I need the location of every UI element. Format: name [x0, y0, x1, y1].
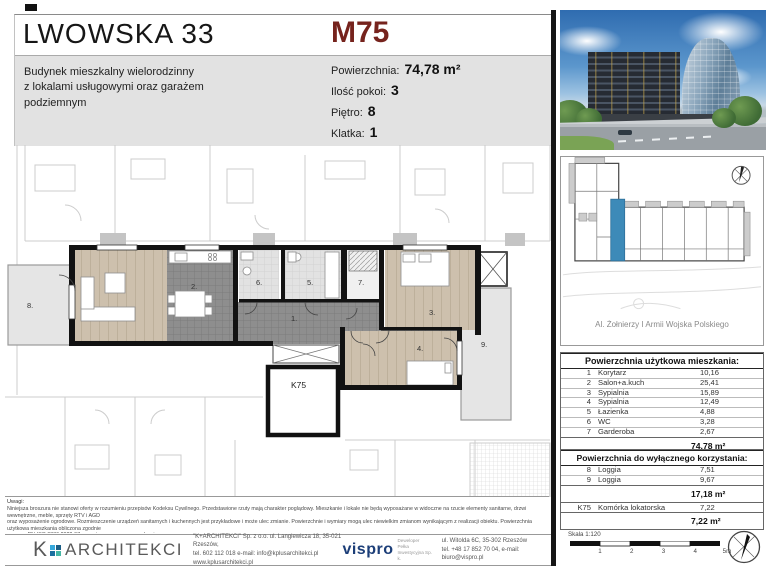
- logo-square: [50, 551, 55, 556]
- scale-tick: 3: [648, 548, 678, 555]
- scale-tick: 2: [617, 548, 647, 555]
- table-row: 2 Salon+a.kuch 25,41: [561, 378, 763, 388]
- room-label-3: 3.: [429, 308, 435, 317]
- vispro-logo: vispro Deweloper Pełka Inwestycyjna Sp. …: [342, 538, 433, 562]
- room-number: 8: [561, 466, 591, 475]
- scale-bar: [570, 541, 722, 548]
- karchitekci-logo-text: ARCHITEKCI: [65, 540, 183, 560]
- developer-contact-line: ul. Witolda 6C, 35-302 Rzeszów: [442, 537, 545, 546]
- scale-footer: Skala 1:120 1 2 3 4 5m: [560, 528, 764, 568]
- notes-body: Niniejsza broszura nie stanowi oferty w …: [7, 506, 547, 533]
- floor-plan-drawing: 8. 2. 6. 5. 7. 3. 1. 4. 9. K75: [5, 145, 552, 497]
- table-row: 4 Sypialnia 12,49: [561, 397, 763, 407]
- architect-contact-line: tel. 602 112 018 e-mail: info@kplusarchi…: [193, 550, 342, 559]
- room-label-8: 8.: [27, 301, 33, 310]
- unit-number: M75: [331, 16, 389, 50]
- scale-tick: 4: [680, 548, 710, 555]
- room-name: Loggia: [591, 476, 698, 485]
- room-label-2: 2.: [191, 282, 197, 291]
- room-label-7: 7.: [358, 278, 364, 287]
- car: [618, 130, 632, 135]
- description-line: Budynek mieszkalny wielorodzinny: [24, 65, 204, 80]
- table-subtotal: 17,18 m²: [561, 485, 763, 502]
- room-name: Salon+a.kuch: [591, 379, 698, 388]
- detail-row: Klatka: 1: [331, 124, 461, 142]
- tree: [712, 108, 736, 128]
- project-title: LWOWSKA 33: [23, 18, 215, 50]
- detail-value: 1: [370, 124, 378, 140]
- detail-label: Klatka:: [331, 126, 365, 142]
- vispro-tagline-line: Pełka Inwestycyjna Sp. k.: [397, 544, 433, 562]
- room-name: WC: [591, 418, 698, 427]
- scale-label: Skala 1:120: [568, 531, 601, 538]
- room-label-9: 9.: [481, 340, 487, 349]
- street-name: Al. Żołnierzy I Armii Wojska Polskiego: [561, 320, 763, 329]
- detail-label: Powierzchnia:: [331, 63, 399, 79]
- legal-notes: Uwagi: Niniejsza broszura nie stanowi of…: [5, 496, 549, 533]
- description-line: podziemnym: [24, 96, 204, 111]
- detail-row: Piętro: 8: [331, 103, 461, 121]
- room-name: Korytarz: [591, 369, 698, 378]
- brochure-page: LWOWSKA 33 M75 Budynek mieszkalny wielor…: [0, 0, 770, 570]
- notes-line: Niniejsza broszura nie stanowi oferty w …: [7, 506, 547, 519]
- room-number: 9: [561, 476, 591, 485]
- cellar-area: 7,22: [698, 504, 763, 513]
- room-number: 2: [561, 379, 591, 388]
- room-area: 9,67: [698, 476, 763, 485]
- table-row: 8 Loggia 7,51: [561, 466, 763, 475]
- built-in-wardrobe: [273, 345, 339, 363]
- room-number: 3: [561, 389, 591, 398]
- site-plan-drawing: [561, 157, 763, 315]
- siteplan-building-outline: [575, 163, 744, 261]
- table-row: 3 Sypialnia 15,89: [561, 388, 763, 398]
- table-row: 7 Garderoba 2,67: [561, 427, 763, 437]
- compass-icon: [726, 529, 762, 565]
- table-row: 1 Korytarz 10,16: [561, 369, 763, 378]
- vispro-logo-text: vispro: [342, 541, 393, 559]
- room-number: 6: [561, 418, 591, 427]
- detail-label: Ilość pokoi:: [331, 84, 386, 100]
- karchitekci-logo-k: K: [33, 538, 47, 562]
- table-rows: 1 Korytarz 10,16 2 Salon+a.kuch 25,41 3 …: [561, 369, 763, 437]
- logo-square: [56, 545, 61, 550]
- room-label-6: 6.: [256, 278, 262, 287]
- table-title: Powierzchnia użytkowa mieszkania:: [561, 353, 763, 369]
- header-gray-band: Budynek mieszkalny wielorodzinny z lokal…: [15, 56, 553, 146]
- room-area: 12,49: [698, 398, 763, 407]
- column-divider: [551, 10, 556, 566]
- room-number: 4: [561, 398, 591, 407]
- project-description: Budynek mieszkalny wielorodzinny z lokal…: [24, 65, 204, 111]
- detail-value: 3: [391, 82, 399, 98]
- print-mark: [25, 4, 37, 11]
- room-loggia-8: [8, 265, 71, 345]
- table-title: Powierzchnia do wyłącznego korzystania:: [561, 450, 763, 466]
- room-area: 15,89: [698, 389, 763, 398]
- table-rows: 8 Loggia 7,51 9 Loggia 9,67: [561, 466, 763, 485]
- architect-contact: "K+ARCHITEKCI" Sp. z o.o. ul. Langiewicz…: [193, 533, 342, 568]
- siteplan-roads: [563, 267, 761, 309]
- room-area: 10,16: [698, 369, 763, 378]
- architect-contact-line: www.kplusarchitekci.pl: [193, 559, 342, 568]
- notes-line: oraz wyposażenie ogrodowe. Rozmieszczeni…: [7, 519, 547, 532]
- site-plan-box: Al. Żołnierzy I Armii Wojska Polskiego: [560, 156, 764, 346]
- table-row-cellar: K75 Komórka lokatorska 7,22: [561, 502, 763, 513]
- siteplan-compass-icon: [732, 166, 750, 184]
- building-block: [588, 52, 680, 118]
- grass: [560, 136, 614, 150]
- scale-ticks: 1 2 3 4 5m: [585, 548, 742, 555]
- room-label-5: 5.: [307, 278, 313, 287]
- notes-heading: Uwagi:: [7, 499, 547, 506]
- cellar-section: K75 Komórka lokatorska 7,22: [561, 502, 763, 513]
- footer: K ARCHITEKCI "K+ARCHITEKCI" Sp. z o.o. u…: [5, 534, 551, 566]
- karchitekci-logo-icon: [50, 545, 61, 556]
- room-number: 5: [561, 408, 591, 417]
- header: LWOWSKA 33 M75 Budynek mieszkalny wielor…: [14, 14, 553, 146]
- table-row: 9 Loggia 9,67: [561, 475, 763, 485]
- detail-row: Powierzchnia: 74,78 m²: [331, 61, 461, 79]
- room-label-1: 1.: [291, 314, 297, 323]
- room-name: Garderoba: [591, 428, 698, 437]
- room-label-4: 4.: [417, 344, 423, 353]
- description-line: z lokalami usługowymi oraz garażem: [24, 80, 204, 95]
- room-name: Loggia: [591, 466, 698, 475]
- scale-tick: 1: [585, 548, 615, 555]
- room-number: 7: [561, 428, 591, 437]
- neighbour-shafts: [100, 233, 525, 246]
- storage-room-k75: [268, 367, 338, 435]
- cellar-total: 7,22 m²: [561, 512, 763, 529]
- room-name: Sypialnia: [591, 389, 698, 398]
- room-name: Łazienka: [591, 408, 698, 417]
- logo-square: [56, 551, 61, 556]
- cellar-name: Komórka lokatorska: [591, 504, 698, 513]
- room-area: 25,41: [698, 379, 763, 388]
- detail-value: 74,78 m²: [404, 61, 460, 77]
- detail-label: Piętro:: [331, 105, 363, 121]
- room-area: 3,28: [698, 418, 763, 427]
- shaft-right: [479, 252, 507, 286]
- table-row: 5 Łazienka 4,88: [561, 407, 763, 417]
- developer-contact-line: tel. +48 17 852 70 04, e-mail: biuro@vis…: [442, 546, 545, 563]
- room-area: 7,51: [698, 466, 763, 475]
- karchitekci-logo: K ARCHITEKCI: [33, 538, 183, 562]
- neighbour-terrace-hatch: [470, 443, 550, 497]
- room-number: 1: [561, 369, 591, 378]
- building-visualization: [560, 10, 766, 150]
- siteplan-highlighted-unit: [611, 199, 625, 261]
- area-table-exclusive: Powierzchnia do wyłącznego korzystania: …: [560, 449, 764, 530]
- unit-details: Powierzchnia: 74,78 m² Ilość pokoi: 3 Pi…: [331, 61, 461, 145]
- room-label-k75: K75: [291, 380, 306, 390]
- vispro-tagline: Deweloper Pełka Inwestycyjna Sp. k.: [397, 538, 433, 562]
- title-band: LWOWSKA 33 M75: [15, 15, 553, 56]
- developer-contact: ul. Witolda 6C, 35-302 Rzeszów tel. +48 …: [442, 537, 545, 563]
- area-table-usable: Powierzchnia użytkowa mieszkania: 1 Kory…: [560, 352, 764, 455]
- detail-row: Ilość pokoi: 3: [331, 82, 461, 100]
- room-area: 2,67: [698, 428, 763, 437]
- architect-contact-line: "K+ARCHITEKCI" Sp. z o.o. ul. Langiewicz…: [193, 533, 342, 550]
- logo-square: [50, 545, 55, 550]
- room-area: 4,88: [698, 408, 763, 417]
- detail-value: 8: [368, 103, 376, 119]
- cellar-number: K75: [561, 504, 591, 513]
- wardrobe-hatch: [349, 251, 377, 271]
- room-name: Sypialnia: [591, 398, 698, 407]
- table-row: 6 WC 3,28: [561, 417, 763, 427]
